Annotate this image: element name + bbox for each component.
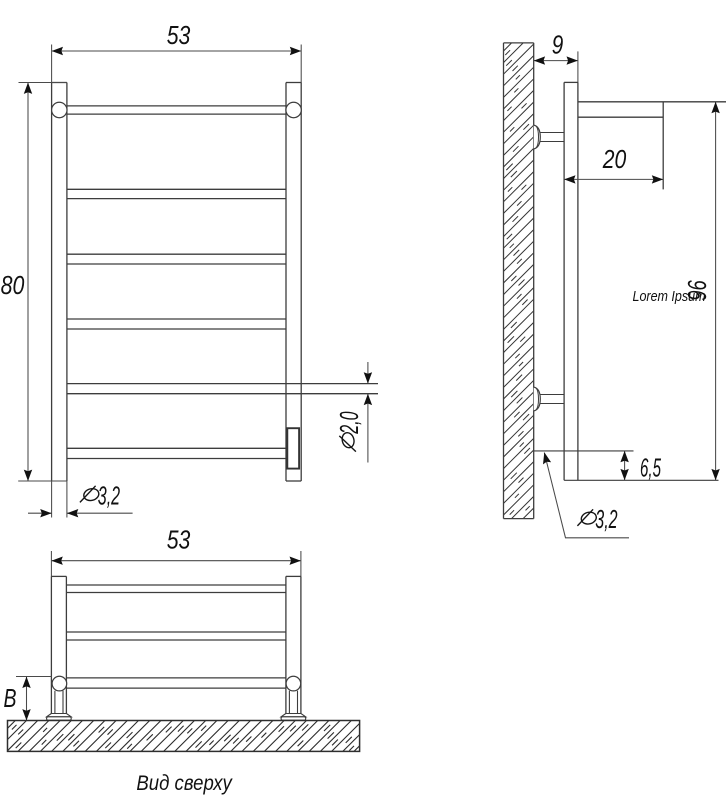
svg-text:53: 53 [167,524,191,554]
svg-text:80: 80 [1,270,25,300]
svg-text:9: 9 [552,30,564,60]
svg-text:3,2: 3,2 [595,504,618,534]
svg-text:В: В [4,683,17,713]
svg-text:53: 53 [167,20,191,50]
svg-text:3,2: 3,2 [98,481,121,511]
svg-text:6,5: 6,5 [640,453,661,483]
svg-text:Вид сверху: Вид сверху [136,772,233,795]
svg-text:Lorem Ipsum: Lorem Ipsum [633,288,706,305]
svg-text:20: 20 [602,144,627,174]
svg-text:2,0: 2,0 [334,411,364,434]
